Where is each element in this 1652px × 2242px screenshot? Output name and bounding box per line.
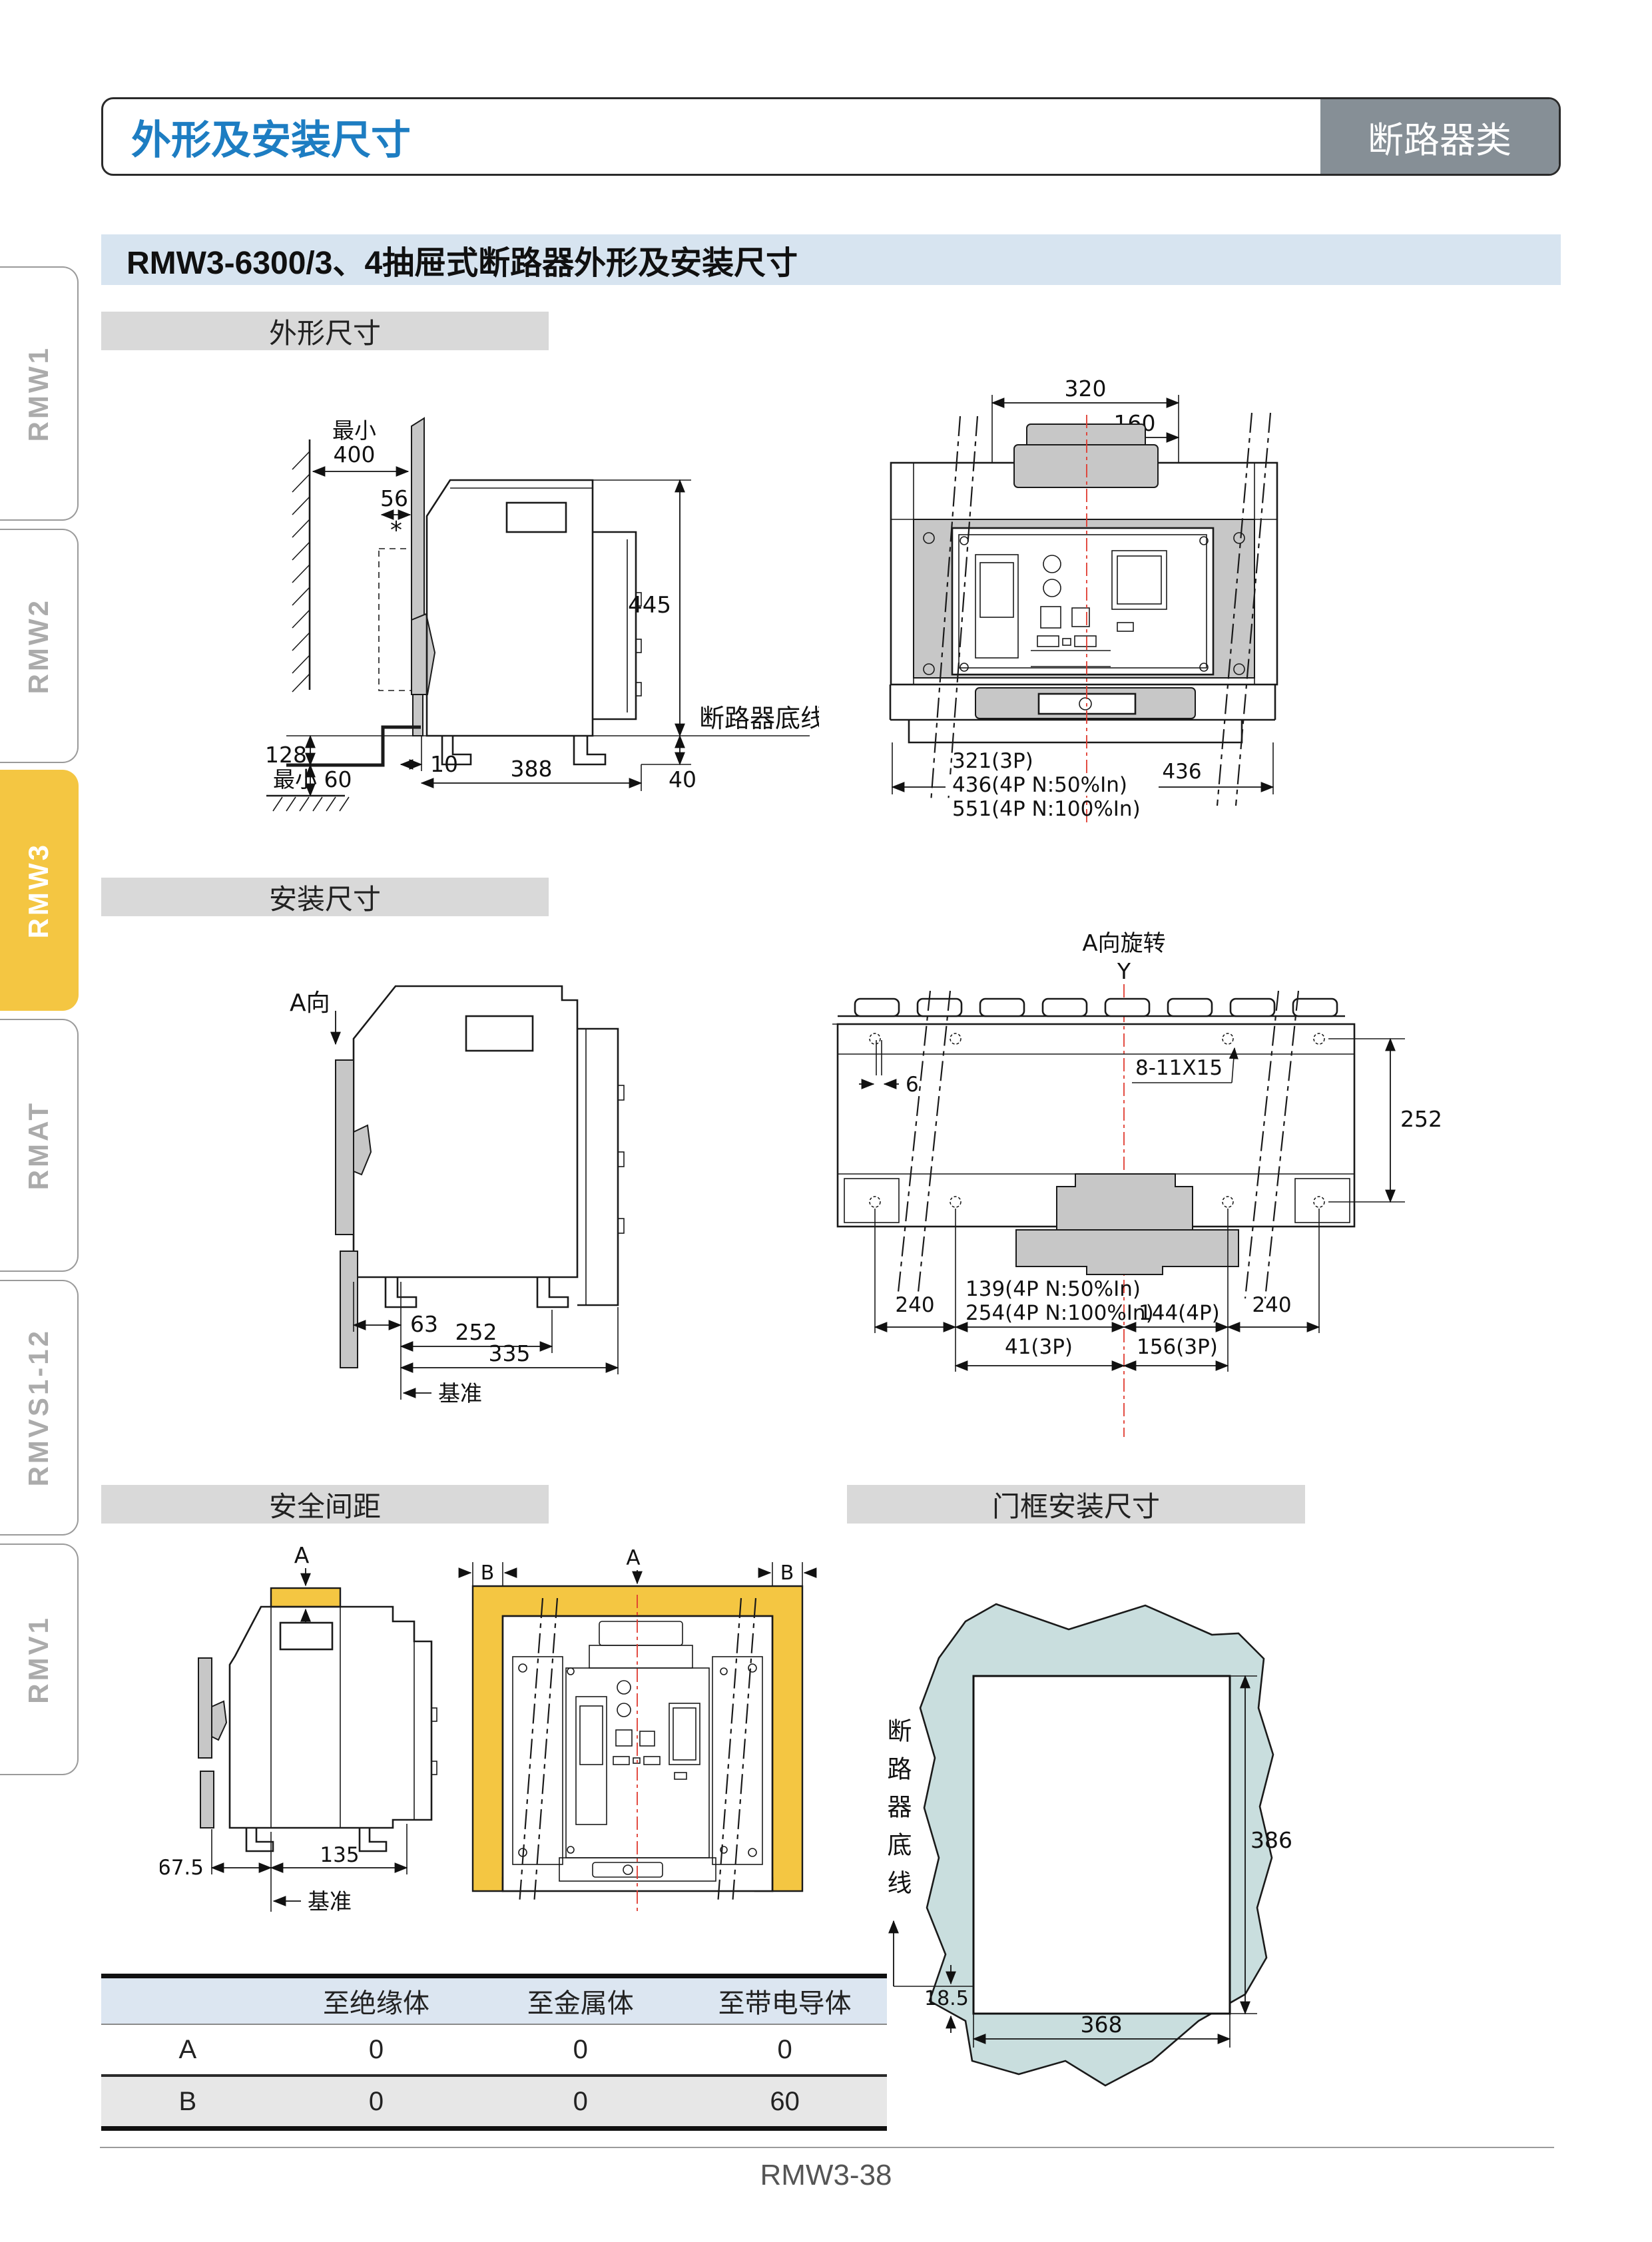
cell-value: 0 bbox=[478, 2076, 683, 2129]
mounting-plate bbox=[838, 1024, 1354, 1274]
terminal-lugs bbox=[832, 999, 1350, 1024]
cell-value: 0 bbox=[274, 2024, 479, 2076]
rotated-view-label: A向旋转 bbox=[1082, 930, 1165, 957]
dim-6: 6 bbox=[906, 1073, 919, 1097]
dim-135: 135 bbox=[320, 1843, 359, 1867]
footer-divider bbox=[100, 2147, 1554, 2148]
dim-240-left: 240 bbox=[895, 1293, 934, 1317]
sidebar-tab-rmvs1-12: RMVS1-12 bbox=[0, 1280, 79, 1536]
dim-252: 252 bbox=[1400, 1106, 1442, 1132]
breaker-body-outline bbox=[427, 480, 641, 764]
dim-400: 400 bbox=[334, 441, 376, 467]
subsection-safety-clearance: 安全间距 bbox=[101, 1485, 549, 1524]
dim-width-3p: 321(3P) bbox=[952, 749, 1033, 773]
sidebar-tab-rmv1: RMV1 bbox=[0, 1543, 79, 1775]
cell-value: 60 bbox=[683, 2076, 887, 2129]
dimensions: 最小 400 56 * 445 128 最小 60 10 388 40 bbox=[265, 418, 696, 796]
subsection-install-dims: 安装尺寸 bbox=[101, 878, 549, 916]
outline-side-view-drawing: 断路器底线 最小 400 56 * 445 128 最小 60 10 bbox=[246, 400, 819, 839]
breaker-body-outline bbox=[336, 986, 624, 1368]
table-row: B 0 0 60 bbox=[101, 2076, 887, 2129]
dim-445: 445 bbox=[628, 592, 671, 619]
dim-40: 40 bbox=[669, 766, 696, 792]
header-to-live-conductor: 至带电导体 bbox=[683, 1976, 887, 2025]
clearance-b-right: B bbox=[760, 1561, 815, 1586]
subsection-outline-dims: 外形尺寸 bbox=[101, 312, 549, 350]
view-a-label: A向 bbox=[290, 989, 330, 1017]
clearance-b-left: B bbox=[460, 1561, 515, 1586]
y-axis-label: Y bbox=[1117, 958, 1131, 984]
baseline-label: 断路器底线 bbox=[699, 704, 819, 733]
doorframe-cutout-drawing: 386 368 18.5 bbox=[866, 1595, 1332, 2091]
sidebar-tab-label: RMW2 bbox=[23, 598, 55, 694]
dim-388: 388 bbox=[511, 756, 553, 782]
breaker-body-outline bbox=[198, 1607, 437, 1851]
row-label: A bbox=[101, 2024, 274, 2076]
sidebar-tab-rmw3-active: RMW3 bbox=[0, 770, 79, 1011]
dim-436: 436 bbox=[1162, 760, 1201, 784]
dim-63: 63 bbox=[410, 1311, 438, 1337]
lower-flange bbox=[890, 685, 1275, 742]
doorframe-baseline-label: 断路器底线 bbox=[879, 1718, 915, 1931]
clearance-a: A bbox=[271, 1542, 340, 1627]
sidebar-tab-label: RMW1 bbox=[23, 346, 55, 441]
dim-67-5: 67.5 bbox=[160, 1856, 204, 1880]
cutout-opening bbox=[973, 1676, 1230, 2014]
clearance-a-label: A bbox=[626, 1546, 640, 1570]
dim-128: 128 bbox=[265, 742, 307, 768]
dim-41-3p: 41(3P) bbox=[1005, 1335, 1073, 1359]
dim-240-right: 240 bbox=[1252, 1293, 1291, 1317]
view-labels: A向旋转 Y bbox=[1082, 930, 1165, 984]
sidebar-tab-label: RMVS1-12 bbox=[23, 1328, 55, 1486]
dim-156-3p: 156(3P) bbox=[1137, 1335, 1218, 1359]
header-to-insulator: 至绝缘体 bbox=[274, 1976, 479, 2025]
dim-386: 386 bbox=[1250, 1827, 1292, 1853]
table-row: A 0 0 0 bbox=[101, 2024, 887, 2076]
datum-label: 基准 bbox=[438, 1380, 482, 1406]
cell-value: 0 bbox=[478, 2024, 683, 2076]
outline-front-view-drawing: 320 160 Y bbox=[852, 376, 1492, 839]
install-side-view-drawing: A向 63 252 335 基准 bbox=[266, 932, 692, 1442]
hole-callout: 6 8-11X15 bbox=[859, 1040, 1235, 1097]
dim-4p50: 139(4P N:50%In) bbox=[965, 1277, 1141, 1301]
clearance-a-label: A bbox=[294, 1542, 310, 1568]
catalog-page: RMW1 RMW2 RMW3 RMAT RMVS1-12 RMV1 外形及安装尺… bbox=[0, 0, 1652, 2242]
dim-335: 335 bbox=[489, 1340, 531, 1366]
sidebar-tab-label: RMW3 bbox=[23, 842, 55, 938]
safety-front-view-drawing: B B A bbox=[456, 1545, 819, 1918]
clearance-table: 至绝缘体 至金属体 至带电导体 A 0 0 0 B 0 0 60 bbox=[101, 1974, 887, 2131]
subsection-doorframe-dims: 门框安装尺寸 bbox=[847, 1485, 1305, 1524]
dim-min60: 最小 60 bbox=[273, 766, 352, 792]
hole-spec-label: 8-11X15 bbox=[1135, 1056, 1223, 1080]
dim-width-4p100: 551(4P N:100%In) bbox=[952, 797, 1141, 821]
clearance-b-left-label: B bbox=[481, 1561, 495, 1585]
dim-width-4p50: 436(4P N:50%In) bbox=[952, 773, 1127, 797]
dim-star: * bbox=[390, 517, 402, 544]
sidebar-tab-rmat: RMAT bbox=[0, 1019, 79, 1272]
sidebar-tab-rmw1: RMW1 bbox=[0, 266, 79, 521]
dim-min-label: 最小 bbox=[332, 418, 376, 443]
dim-56: 56 bbox=[380, 485, 408, 511]
dim-144: 144(4P) bbox=[1139, 1301, 1220, 1325]
install-top-view-drawing: A向旋转 Y bbox=[806, 926, 1518, 1442]
page-title: 外形及安装尺寸 bbox=[103, 99, 1320, 174]
dim-18-5: 18.5 bbox=[924, 1987, 969, 2010]
header-blank bbox=[101, 1976, 274, 2025]
clearance-b-right-label: B bbox=[780, 1561, 794, 1585]
section-title: RMW3-6300/3、4抽屉式断路器外形及安装尺寸 bbox=[101, 234, 1561, 285]
wall-hatch bbox=[292, 439, 310, 692]
cell-value: 0 bbox=[683, 2024, 887, 2076]
sidebar-tab-label: RMV1 bbox=[23, 1615, 55, 1704]
enclosure bbox=[891, 424, 1277, 685]
cell-value: 0 bbox=[274, 2076, 479, 2129]
category-badge: 断路器类 bbox=[1320, 99, 1559, 174]
table-header-row: 至绝缘体 至金属体 至带电导体 bbox=[101, 1976, 887, 2025]
dim-4p100: 254(4P N:100%In) bbox=[965, 1301, 1154, 1325]
dim-320: 320 bbox=[1065, 376, 1107, 402]
dim-10: 10 bbox=[430, 751, 458, 777]
sidebar-tab-rmw2: RMW2 bbox=[0, 529, 79, 763]
baseline: 断路器底线 bbox=[286, 704, 819, 736]
view-direction: A向 bbox=[290, 989, 336, 1044]
row-label: B bbox=[101, 2076, 274, 2129]
datum-label: 基准 bbox=[308, 1888, 352, 1914]
page-number: RMW3-38 bbox=[0, 2159, 1652, 2192]
dim-368: 368 bbox=[1081, 2012, 1123, 2038]
bottom-dimensions: 321(3P) 436(4P N:50%In) 551(4P N:100%In)… bbox=[892, 742, 1273, 821]
dimensions: 63 252 335 基准 bbox=[354, 1282, 618, 1406]
header-to-metal: 至金属体 bbox=[478, 1976, 683, 2025]
page-header: 外形及安装尺寸 断路器类 bbox=[101, 97, 1561, 176]
sidebar-tab-label: RMAT bbox=[23, 1101, 55, 1190]
